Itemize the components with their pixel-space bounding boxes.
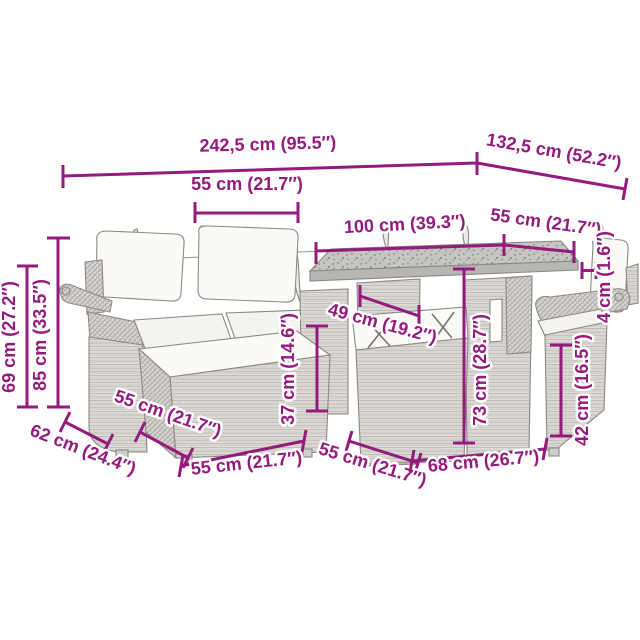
ottoman-foot: [303, 449, 312, 457]
dim-chair-seat-height-label: 42 cm (16.5″): [572, 334, 592, 446]
dim-seat-height-label: 37 cm (14.6″): [278, 313, 298, 425]
dim-tabletop-thickness-label: 4 cm (1.6″): [594, 231, 614, 323]
dim-overall-width-label: 242,5 cm (95.5″): [199, 132, 336, 156]
ottoman-front: [139, 331, 330, 463]
dim-table-width-label: 100 cm (39.3″): [343, 211, 466, 237]
dim-total-height-label: 85 cm (33.5″): [30, 279, 50, 391]
product-dimension-image: 242,5 cm (95.5″) 132,5 cm (52.2″) 55 cm …: [0, 0, 640, 640]
dim-total-height: 85 cm (33.5″): [30, 238, 70, 407]
dim-armrest-height-label: 69 cm (27.2″): [0, 281, 19, 393]
chair-foot: [549, 448, 559, 456]
dim-chair-width-label: 55 cm (21.7″): [489, 204, 602, 239]
dim-sofa-seat-width-label: 55 cm (21.7″): [191, 174, 303, 194]
dimension-diagram-canvas: 242,5 cm (95.5″) 132,5 cm (52.2″) 55 cm …: [0, 0, 640, 640]
dim-sofa-seat-width: 55 cm (21.7″): [191, 174, 303, 223]
dim-overall-depth-label: 132,5 cm (52.2″): [485, 129, 623, 172]
dim-overall-depth: 132,5 cm (52.2″): [477, 129, 627, 200]
dim-table-height-label: 73 cm (28.7″): [470, 314, 490, 426]
